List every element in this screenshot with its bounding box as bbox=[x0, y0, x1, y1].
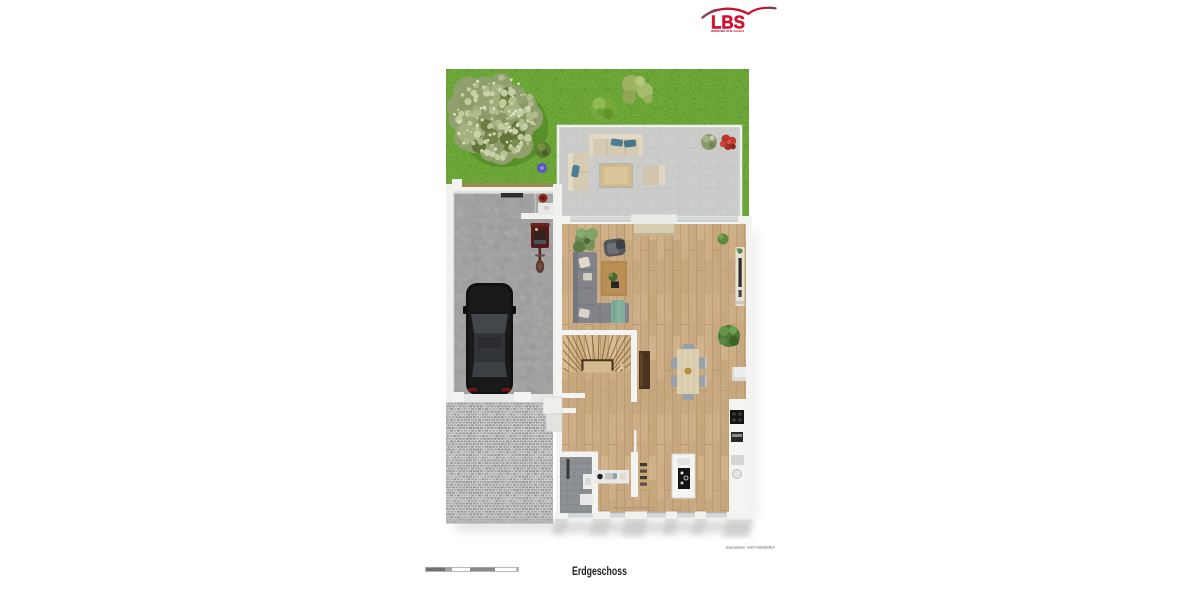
svg-text:Exposéplan: nicht maßstäblich: Exposéplan: nicht maßstäblich bbox=[726, 545, 775, 550]
svg-text:IMMOBILIEN GmbH: IMMOBILIEN GmbH bbox=[711, 29, 744, 33]
svg-text:Erdgeschoss: Erdgeschoss bbox=[572, 566, 627, 578]
